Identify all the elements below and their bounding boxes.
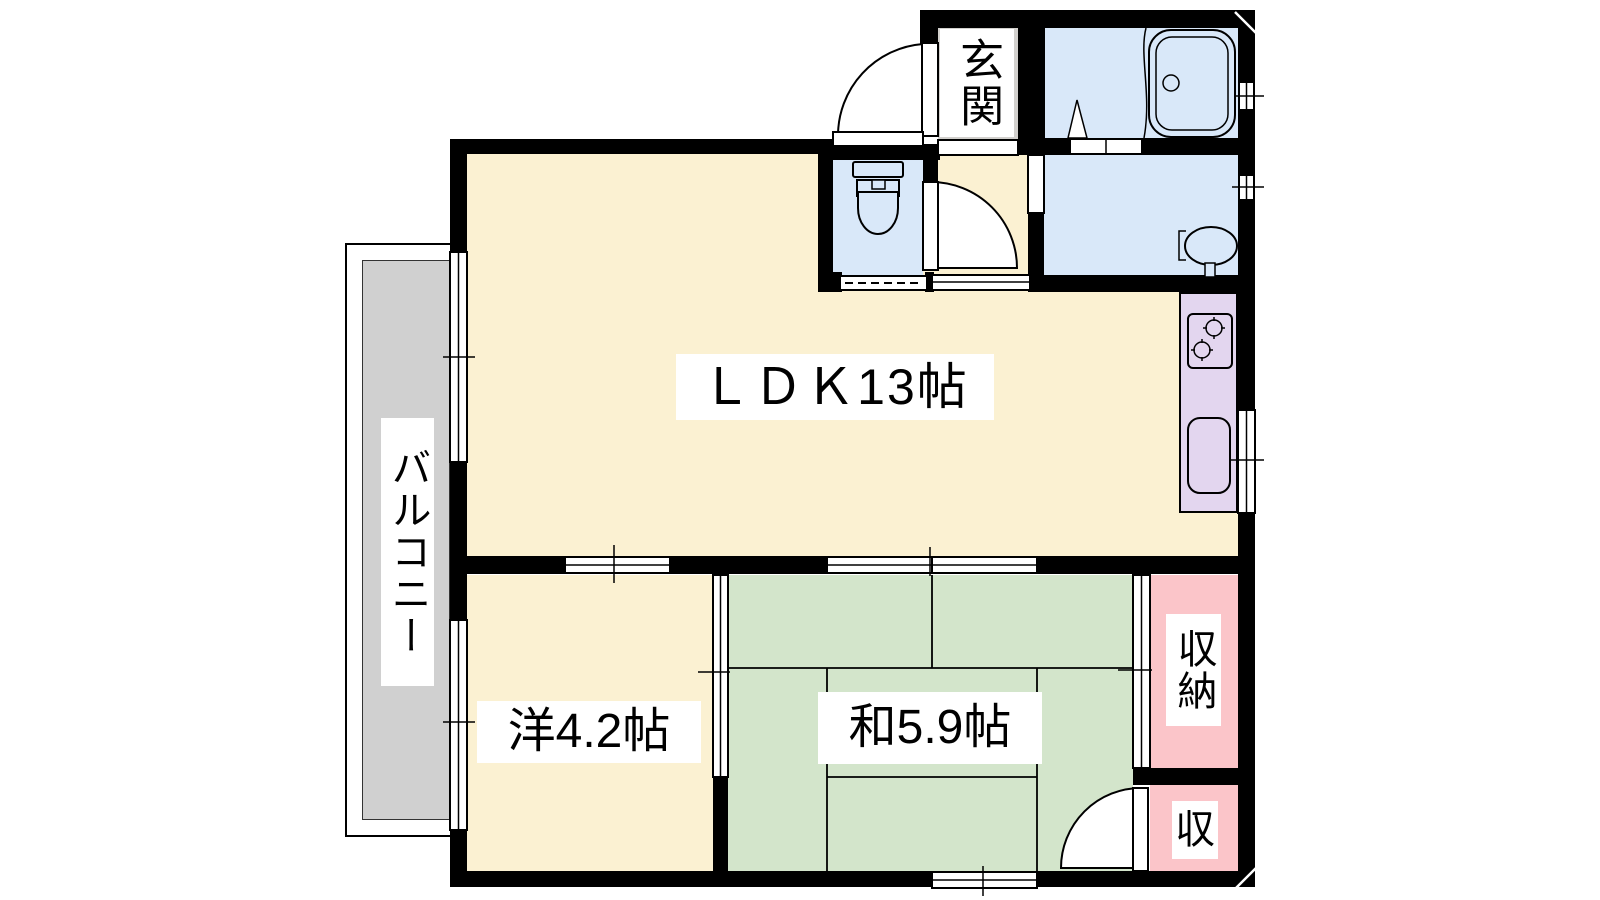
wall-bottom	[450, 871, 1255, 887]
bathroom-window	[1239, 82, 1254, 110]
wall-entrance-bath	[1018, 28, 1045, 155]
wall-storage-divider	[1133, 768, 1238, 785]
balcony-label: バルコニー	[381, 418, 434, 686]
ldk-label: ＬＤＫ13帖	[676, 354, 994, 420]
room-toilet	[833, 160, 923, 276]
ldk-balcony-window	[450, 252, 467, 462]
western-japanese-sliding-door	[713, 575, 728, 777]
room-washroom	[1044, 155, 1238, 275]
entrance-label: 玄関	[940, 29, 1014, 137]
washroom-window	[1239, 175, 1254, 200]
wall-left	[450, 139, 467, 883]
wall-right	[1238, 10, 1255, 887]
entrance-door	[922, 43, 938, 136]
ldk-western-sliding-door	[565, 557, 670, 573]
ldk-japanese-sliding-door-left	[827, 557, 932, 573]
western-balcony-window	[450, 620, 467, 830]
entrance-door-swing	[838, 44, 930, 136]
japanese-south-window	[932, 872, 1037, 888]
japanese-storage-sliding-door	[1133, 575, 1150, 768]
bathroom-door	[1070, 139, 1142, 154]
wall-ldk-top	[450, 139, 833, 154]
wall-ldk-south	[452, 556, 1238, 574]
storage-small-label: 収	[1172, 801, 1218, 859]
kitchen-counter	[1179, 292, 1238, 513]
japanese-room-label: 和5.9帖	[818, 692, 1042, 764]
western-room-label: 洋4.2帖	[477, 701, 701, 763]
wall-entrance-stub	[920, 10, 938, 44]
wall-top	[920, 10, 1255, 28]
ldk-japanese-sliding-door-right	[932, 557, 1037, 573]
kitchen-window	[1238, 410, 1255, 513]
corner-miter-bottom-right	[1236, 868, 1256, 888]
corner-miter-top-right	[1235, 12, 1256, 33]
storage-large-label: 収納	[1166, 614, 1221, 726]
wall-western-japanese-lower	[713, 777, 728, 873]
entrance-porch-step	[833, 132, 923, 146]
room-bathroom	[1045, 28, 1238, 138]
storage-small-door	[1133, 788, 1148, 871]
floorplan: ＬＤＫ13帖 洋4.2帖 和5.9帖 バルコニー 玄関 収納 収	[0, 0, 1600, 900]
